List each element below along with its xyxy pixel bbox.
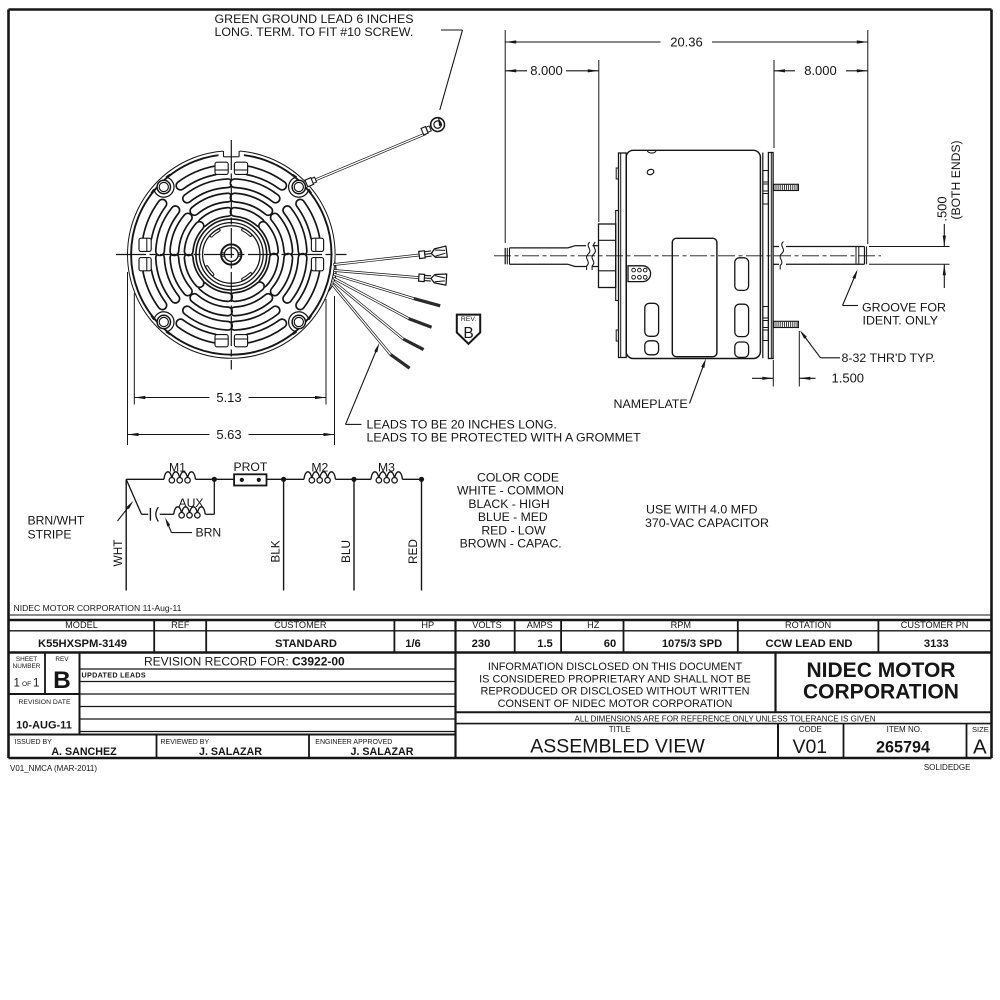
svg-text:IS CONSIDERED PROPRIETARY AND: IS CONSIDERED PROPRIETARY AND SHALL NOT … xyxy=(479,673,751,685)
svg-text:IDENT. ONLY: IDENT. ONLY xyxy=(863,314,939,328)
svg-text:REV: REV xyxy=(55,656,69,663)
svg-text:INFORMATION DISCLOSED ON THIS: INFORMATION DISCLOSED ON THIS DOCUMENT xyxy=(488,661,743,673)
svg-text:ALL DIMENSIONS ARE FOR REFEREN: ALL DIMENSIONS ARE FOR REFERENCE ONLY UN… xyxy=(575,715,876,724)
svg-text:BRN: BRN xyxy=(196,526,222,540)
svg-text:A. SANCHEZ: A. SANCHEZ xyxy=(51,746,117,758)
svg-text:.500: .500 xyxy=(935,196,950,221)
svg-text:RPM: RPM xyxy=(671,620,691,630)
svg-text:CUSTOMER PN: CUSTOMER PN xyxy=(901,620,969,630)
svg-text:AMPS: AMPS xyxy=(527,620,553,630)
svg-text:LEADS TO BE PROTECTED WITH A G: LEADS TO BE PROTECTED WITH A GROMMET xyxy=(367,431,642,445)
svg-text:CORPORATION: CORPORATION xyxy=(803,681,959,704)
svg-text:UPDATED LEADS: UPDATED LEADS xyxy=(82,671,146,680)
svg-text:B: B xyxy=(53,667,71,694)
svg-text:(BOTH ENDS): (BOTH ENDS) xyxy=(949,140,963,219)
svg-text:BLUE - MED: BLUE - MED xyxy=(478,510,548,524)
svg-text:PROT: PROT xyxy=(233,460,267,474)
svg-text:1: 1 xyxy=(33,678,39,690)
svg-text:REVISION DATE: REVISION DATE xyxy=(19,699,71,706)
svg-text:HZ: HZ xyxy=(587,620,600,630)
svg-text:8-32 THR'D TYP.: 8-32 THR'D TYP. xyxy=(842,351,936,365)
svg-text:1075/3 SPD: 1075/3 SPD xyxy=(662,638,722,650)
svg-text:OF: OF xyxy=(22,681,31,688)
svg-text:SIZE: SIZE xyxy=(972,725,989,734)
svg-text:RED: RED xyxy=(406,539,420,564)
svg-text:SHEET: SHEET xyxy=(16,656,37,663)
svg-text:M1: M1 xyxy=(169,461,186,475)
svg-text:SOLIDEDGE: SOLIDEDGE xyxy=(924,763,971,772)
svg-text:LONG. TERM. TO FIT #10 SCREW.: LONG. TERM. TO FIT #10 SCREW. xyxy=(215,25,414,39)
svg-text:COLOR CODE: COLOR CODE xyxy=(477,471,559,485)
svg-text:WHT: WHT xyxy=(111,540,125,567)
svg-text:10-AUG-11: 10-AUG-11 xyxy=(16,720,72,732)
svg-text:M2: M2 xyxy=(311,461,328,475)
svg-text:265794: 265794 xyxy=(876,739,930,757)
svg-text:STANDARD: STANDARD xyxy=(275,638,337,650)
svg-text:1/6: 1/6 xyxy=(405,638,421,650)
svg-text:BRN/WHT: BRN/WHT xyxy=(28,514,85,528)
svg-text:8.000: 8.000 xyxy=(804,63,837,78)
svg-text:NIDEC MOTOR: NIDEC MOTOR xyxy=(807,659,956,682)
svg-text:CONSENT OF NIDEC MOTOR CORPORA: CONSENT OF NIDEC MOTOR CORPORATION xyxy=(498,698,733,710)
svg-text:1: 1 xyxy=(14,678,20,690)
svg-text:REF: REF xyxy=(171,620,190,630)
svg-text:NUMBER: NUMBER xyxy=(13,663,41,670)
svg-text:GREEN GROUND LEAD 6 INCHES: GREEN GROUND LEAD 6 INCHES xyxy=(215,12,414,26)
svg-text:1.500: 1.500 xyxy=(832,371,865,386)
svg-text:K55HXSPM-3149: K55HXSPM-3149 xyxy=(38,638,127,650)
svg-text:BROWN - CAPAC.: BROWN - CAPAC. xyxy=(460,537,562,551)
svg-text:1.5: 1.5 xyxy=(537,638,553,650)
svg-text:STRIPE: STRIPE xyxy=(28,528,72,542)
svg-text:NAMEPLATE: NAMEPLATE xyxy=(614,397,688,411)
svg-text:V01: V01 xyxy=(792,736,827,758)
svg-text:CODE: CODE xyxy=(799,725,822,734)
svg-text:NIDEC MOTOR CORPORATION 11-Aug: NIDEC MOTOR CORPORATION 11-Aug-11 xyxy=(14,603,182,613)
svg-text:HP: HP xyxy=(421,620,434,630)
svg-text:J. SALAZAR: J. SALAZAR xyxy=(199,746,262,758)
svg-text:3133: 3133 xyxy=(924,638,949,650)
svg-text:B: B xyxy=(463,325,473,342)
svg-text:CCW LEAD END: CCW LEAD END xyxy=(765,638,852,650)
svg-text:5.63: 5.63 xyxy=(216,427,241,442)
svg-text:TITLE: TITLE xyxy=(609,725,631,734)
svg-text:60: 60 xyxy=(604,638,616,650)
svg-text:20.36: 20.36 xyxy=(670,34,703,49)
svg-text:5.13: 5.13 xyxy=(216,390,241,405)
svg-text:V01_NMCA (MAR-2011): V01_NMCA (MAR-2011) xyxy=(10,764,97,773)
svg-text:ROTATION: ROTATION xyxy=(785,620,831,630)
svg-text:BLACK - HIGH: BLACK - HIGH xyxy=(468,497,549,511)
svg-text:VOLTS: VOLTS xyxy=(472,620,501,630)
svg-text:WHITE - COMMON: WHITE - COMMON xyxy=(457,484,564,498)
svg-text:MODEL: MODEL xyxy=(65,620,98,630)
svg-text:REPRODUCED OR DISCLOSED WITHOU: REPRODUCED OR DISCLOSED WITHOUT WRITTEN xyxy=(480,686,749,698)
svg-text:LEADS TO BE 20 INCHES LONG.: LEADS TO BE 20 INCHES LONG. xyxy=(367,418,557,432)
svg-text:8.000: 8.000 xyxy=(530,63,563,78)
svg-text:REV.: REV. xyxy=(461,316,476,323)
svg-text:CUSTOMER: CUSTOMER xyxy=(274,620,327,630)
svg-text:ASSEMBLED VIEW: ASSEMBLED VIEW xyxy=(530,735,705,757)
svg-text:USE WITH 4.0 MFD: USE WITH 4.0 MFD xyxy=(646,503,758,517)
svg-text:ITEM NO.: ITEM NO. xyxy=(887,725,923,734)
svg-text:BLK: BLK xyxy=(269,540,283,562)
svg-text:A: A xyxy=(973,736,987,759)
svg-text:GROOVE FOR: GROOVE FOR xyxy=(862,301,946,315)
svg-text:370-VAC CAPACITOR: 370-VAC CAPACITOR xyxy=(645,516,769,530)
svg-text:RED - LOW: RED - LOW xyxy=(481,523,546,537)
svg-text:M3: M3 xyxy=(378,461,395,475)
svg-text:230: 230 xyxy=(472,638,491,650)
svg-text:J. SALAZAR: J. SALAZAR xyxy=(351,746,414,758)
svg-text:REVISION RECORD FOR: C3922-00: REVISION RECORD FOR: C3922-00 xyxy=(144,655,345,669)
svg-text:BLU: BLU xyxy=(339,540,353,563)
svg-text:ISSUED BY: ISSUED BY xyxy=(15,739,53,746)
svg-text:AUX: AUX xyxy=(178,496,203,510)
